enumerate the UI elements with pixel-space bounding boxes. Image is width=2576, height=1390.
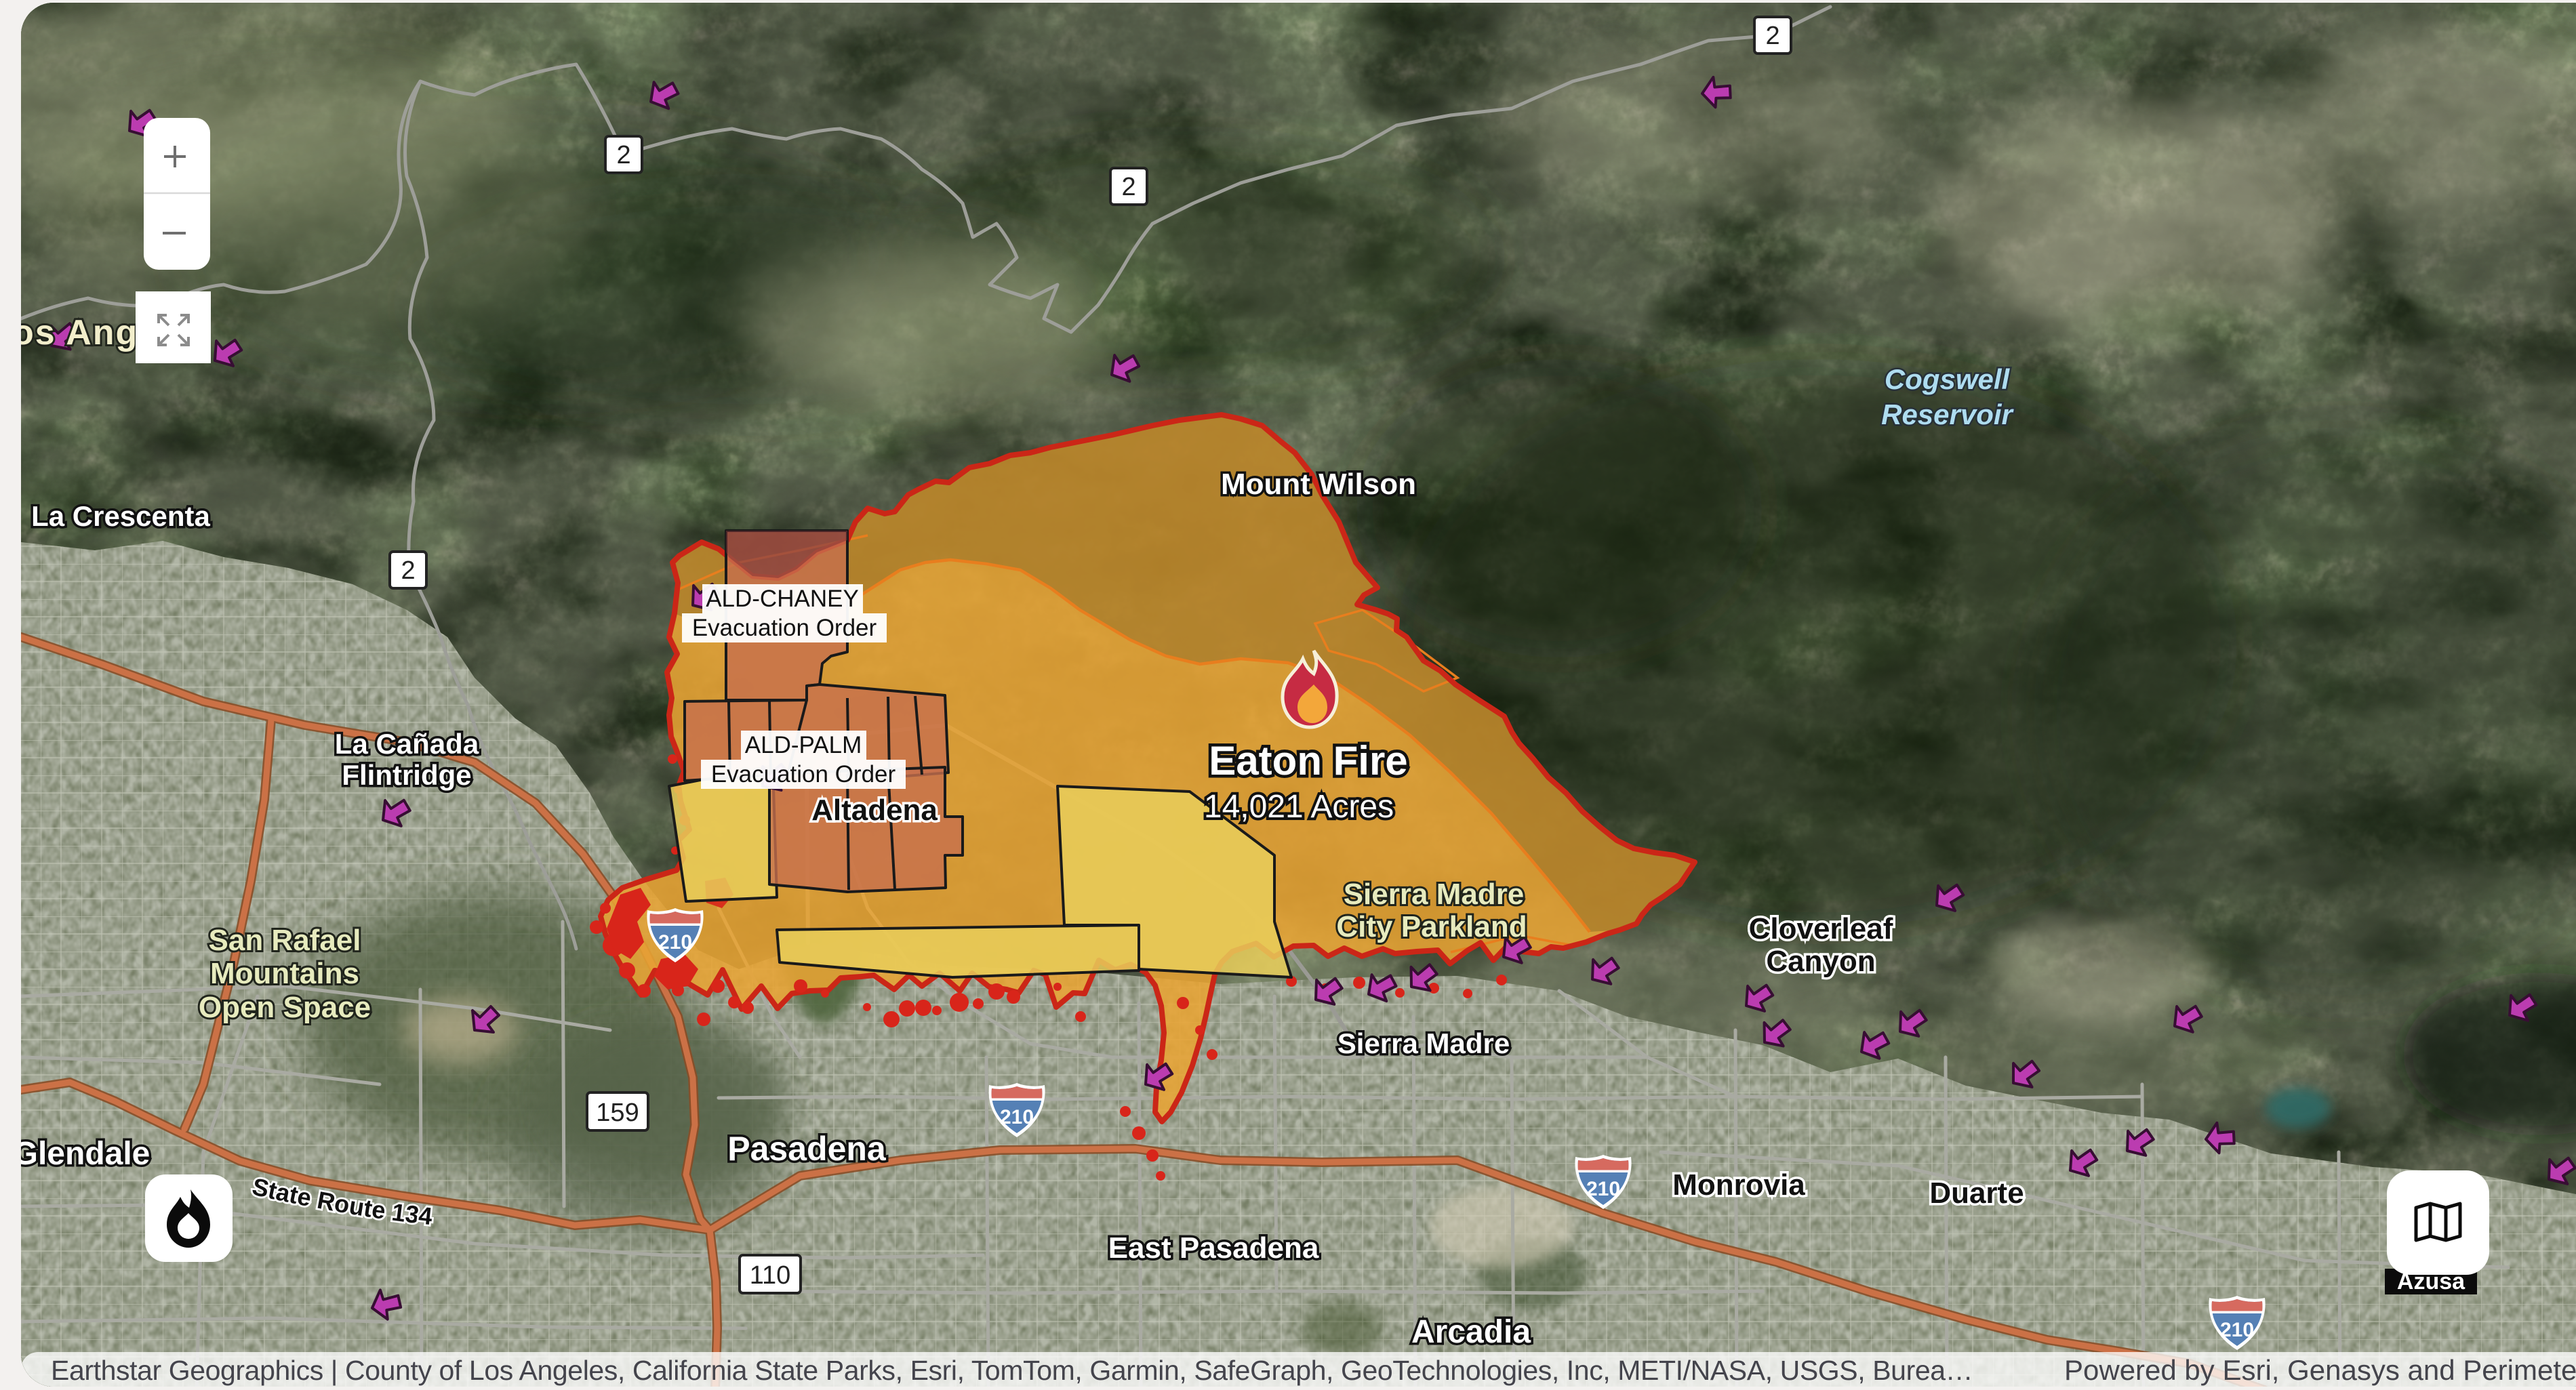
svg-text:Arcadia: Arcadia xyxy=(1411,1314,1531,1350)
svg-text:Eaton Fire: Eaton Fire xyxy=(1209,738,1407,783)
svg-text:Earthstar Geographics | County: Earthstar Geographics | County of Los An… xyxy=(51,1355,1973,1386)
svg-text:Open Space: Open Space xyxy=(199,991,371,1024)
svg-text:East Pasadena: East Pasadena xyxy=(1108,1231,1319,1265)
svg-text:Mountains: Mountains xyxy=(210,957,359,990)
svg-text:14,021 Acres: 14,021 Acres xyxy=(1204,789,1394,825)
svg-text:La Crescenta: La Crescenta xyxy=(31,500,210,532)
svg-text:ALD-PALM: ALD-PALM xyxy=(745,732,862,758)
svg-text:Flintridge: Flintridge xyxy=(342,759,471,791)
svg-text:Evacuation Order: Evacuation Order xyxy=(692,615,877,641)
svg-text:Mount Wilson: Mount Wilson xyxy=(1221,468,1416,501)
svg-text:110: 110 xyxy=(750,1261,791,1290)
svg-text:Evacuation Order: Evacuation Order xyxy=(711,761,896,788)
svg-text:ALD-CHANEY: ALD-CHANEY xyxy=(706,586,859,612)
svg-text:Glendale: Glendale xyxy=(21,1136,150,1172)
svg-text:Duarte: Duarte xyxy=(1929,1177,2024,1210)
svg-text:Reservoir: Reservoir xyxy=(1881,398,2014,430)
svg-text:Altadena: Altadena xyxy=(811,794,938,827)
svg-text:Cogswell: Cogswell xyxy=(1885,363,2011,395)
svg-text:Monrovia: Monrovia xyxy=(1672,1168,1805,1202)
svg-text:Powered by Esri, Genasys and P: Powered by Esri, Genasys and Perimete xyxy=(2064,1354,2576,1386)
svg-text:Canyon: Canyon xyxy=(1766,945,1875,978)
svg-text:City Parkland: City Parkland xyxy=(1336,910,1527,943)
svg-text:San Rafael: San Rafael xyxy=(209,924,361,957)
svg-text:Cloverleaf: Cloverleaf xyxy=(1749,912,1893,945)
svg-text:159: 159 xyxy=(596,1099,639,1127)
svg-text:La Cañada: La Cañada xyxy=(335,728,479,760)
svg-text:Pasadena: Pasadena xyxy=(727,1130,887,1168)
svg-text:Sierra Madre: Sierra Madre xyxy=(1344,878,1525,911)
svg-text:Sierra Madre: Sierra Madre xyxy=(1337,1027,1510,1059)
